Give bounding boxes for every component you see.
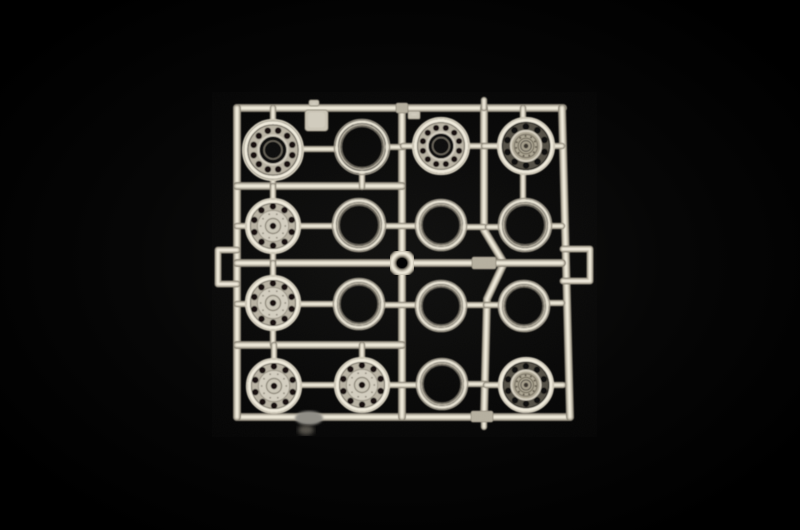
sprue-photo [0, 0, 800, 530]
film-grain-overlay [212, 92, 597, 437]
photo-black-background [0, 0, 800, 530]
